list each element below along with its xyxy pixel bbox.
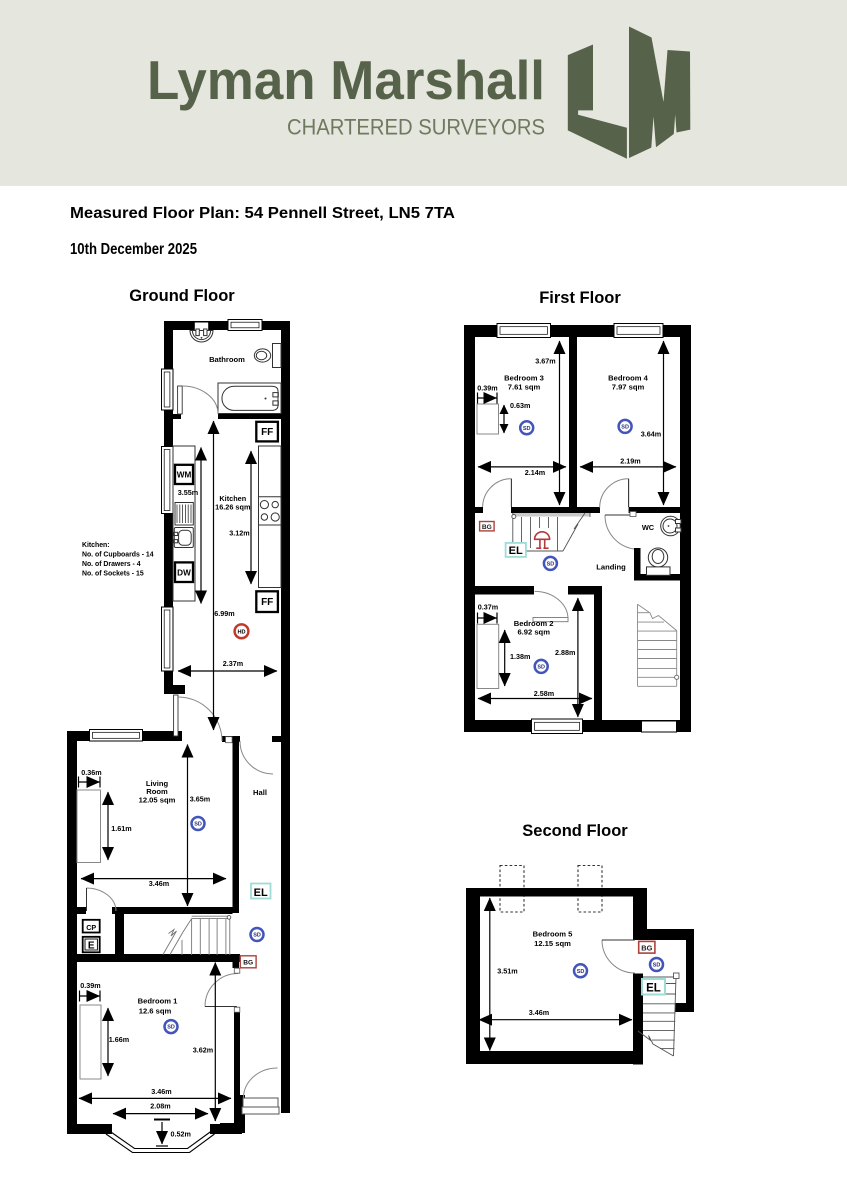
svg-text:No. of Drawers - 4: No. of Drawers - 4 xyxy=(82,561,141,568)
svg-text:2.14m: 2.14m xyxy=(525,468,545,477)
svg-text:0.63m: 0.63m xyxy=(510,401,530,410)
svg-text:BG: BG xyxy=(641,944,652,953)
svg-text:Kitchen:: Kitchen: xyxy=(82,542,110,549)
svg-text:16.26 sqm: 16.26 sqm xyxy=(215,503,251,512)
svg-text:3.46m: 3.46m xyxy=(151,1087,171,1096)
svg-text:6.99m: 6.99m xyxy=(214,609,234,618)
svg-text:Bedroom 3: Bedroom 3 xyxy=(504,374,544,383)
svg-text:7.61 sqm: 7.61 sqm xyxy=(508,383,541,392)
svg-text:Bedroom 5: Bedroom 5 xyxy=(533,930,573,939)
svg-text:3.51m: 3.51m xyxy=(497,967,517,976)
svg-text:Bedroom 4: Bedroom 4 xyxy=(608,374,648,383)
svg-text:FF: FF xyxy=(261,427,273,438)
svg-text:HD: HD xyxy=(237,630,245,636)
svg-text:WM: WM xyxy=(177,471,192,480)
svg-text:Lyman Marshall: Lyman Marshall xyxy=(147,49,545,111)
svg-text:First Floor: First Floor xyxy=(539,289,621,307)
svg-text:2.58m: 2.58m xyxy=(534,689,554,698)
svg-text:1.61m: 1.61m xyxy=(111,824,131,833)
svg-text:2.88m: 2.88m xyxy=(555,648,575,657)
svg-text:Bedroom 1: Bedroom 1 xyxy=(138,997,178,1006)
svg-text:0.52m: 0.52m xyxy=(171,1130,191,1139)
svg-text:3.12m: 3.12m xyxy=(229,529,249,538)
svg-text:12.05 sqm: 12.05 sqm xyxy=(139,796,176,805)
svg-text:7.97 sqm: 7.97 sqm xyxy=(612,383,645,392)
svg-text:0.39m: 0.39m xyxy=(477,384,497,393)
svg-text:12.6 sqm: 12.6 sqm xyxy=(139,1007,172,1016)
svg-text:2.19m: 2.19m xyxy=(620,457,640,466)
svg-text:DW: DW xyxy=(177,569,191,578)
svg-text:Hall: Hall xyxy=(253,788,267,797)
svg-text:10th December 2025: 10th December 2025 xyxy=(70,241,197,258)
svg-text:FF: FF xyxy=(261,597,273,608)
svg-text:No. of Cupboards - 14: No. of Cupboards - 14 xyxy=(82,552,154,559)
svg-text:Landing: Landing xyxy=(596,563,626,572)
svg-text:0.37m: 0.37m xyxy=(478,603,498,612)
svg-text:Second Floor: Second Floor xyxy=(522,822,628,840)
svg-text:3.46m: 3.46m xyxy=(529,1008,549,1017)
svg-text:Measured Floor Plan: 54 Pennel: Measured Floor Plan: 54 Pennell Street, … xyxy=(70,205,455,222)
svg-text:EL: EL xyxy=(509,545,523,557)
svg-text:E: E xyxy=(88,941,95,952)
svg-text:12.15 sqm: 12.15 sqm xyxy=(534,939,571,948)
svg-text:No. of Sockets - 15: No. of Sockets - 15 xyxy=(82,571,144,578)
svg-text:3.65m: 3.65m xyxy=(190,795,210,804)
svg-text:BG: BG xyxy=(243,959,253,966)
svg-text:EL: EL xyxy=(646,983,661,995)
svg-text:0.36m: 0.36m xyxy=(81,768,101,777)
svg-text:3.64m: 3.64m xyxy=(641,430,661,439)
svg-text:2.08m: 2.08m xyxy=(150,1102,170,1111)
svg-text:3.55m: 3.55m xyxy=(178,488,198,497)
svg-text:1.66m: 1.66m xyxy=(109,1035,129,1044)
svg-text:3.46m: 3.46m xyxy=(149,879,169,888)
svg-text:WC: WC xyxy=(642,523,655,532)
svg-text:1.38m: 1.38m xyxy=(510,652,530,661)
svg-text:CP: CP xyxy=(86,923,96,932)
svg-text:6.92 sqm: 6.92 sqm xyxy=(517,628,550,637)
svg-text:0.39m: 0.39m xyxy=(80,981,100,990)
svg-text:BG: BG xyxy=(482,524,492,531)
svg-text:CHARTERED SURVEYORS: CHARTERED SURVEYORS xyxy=(287,115,545,140)
svg-text:3.62m: 3.62m xyxy=(193,1046,213,1055)
svg-text:Ground Floor: Ground Floor xyxy=(129,287,235,305)
svg-text:Bathroom: Bathroom xyxy=(209,355,245,364)
svg-text:EL: EL xyxy=(254,887,268,899)
svg-text:3.67m: 3.67m xyxy=(535,357,555,366)
svg-text:2.37m: 2.37m xyxy=(223,659,243,668)
